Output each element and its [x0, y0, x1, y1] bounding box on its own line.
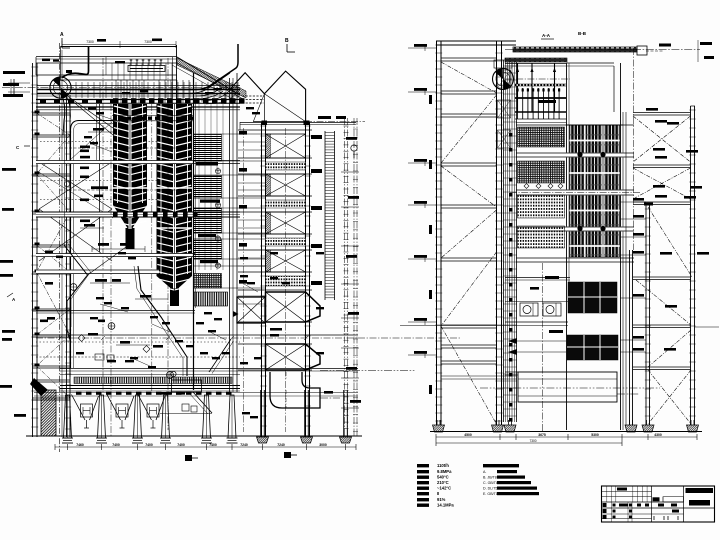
svg-text:7240: 7240	[277, 443, 285, 447]
svg-text:5300: 5300	[591, 433, 599, 437]
svg-text:7400: 7400	[145, 443, 153, 447]
svg-text:7400: 7400	[209, 443, 217, 447]
svg-text:B: B	[285, 38, 289, 44]
svg-text:9.8MPa: 9.8MPa	[437, 469, 452, 474]
svg-text:110t/h: 110t/h	[437, 463, 449, 468]
svg-text:4300: 4300	[654, 433, 662, 437]
svg-text:B-B: B-B	[578, 31, 587, 36]
svg-text:7300: 7300	[529, 439, 536, 443]
svg-text:3675: 3675	[538, 433, 546, 437]
svg-text:91%: 91%	[437, 497, 446, 502]
svg-text:7460: 7460	[76, 443, 84, 447]
svg-text:A: A	[60, 32, 64, 38]
svg-text:7400: 7400	[112, 443, 120, 447]
svg-text:3000: 3000	[319, 443, 327, 447]
svg-text:4500: 4500	[464, 433, 472, 437]
svg-text:14.1MPa: 14.1MPa	[437, 503, 454, 508]
svg-text:A.: A.	[483, 470, 486, 474]
svg-text:540°C: 540°C	[437, 475, 449, 480]
svg-text:7400: 7400	[177, 443, 185, 447]
svg-text:7300: 7300	[144, 40, 152, 44]
svg-text:~142°C: ~142°C	[437, 486, 451, 491]
svg-text:7240: 7240	[240, 443, 248, 447]
svg-text:210°C: 210°C	[437, 480, 449, 485]
svg-text:II: II	[437, 491, 439, 496]
svg-text:A-A: A-A	[542, 33, 551, 38]
svg-text:7300: 7300	[86, 40, 94, 44]
